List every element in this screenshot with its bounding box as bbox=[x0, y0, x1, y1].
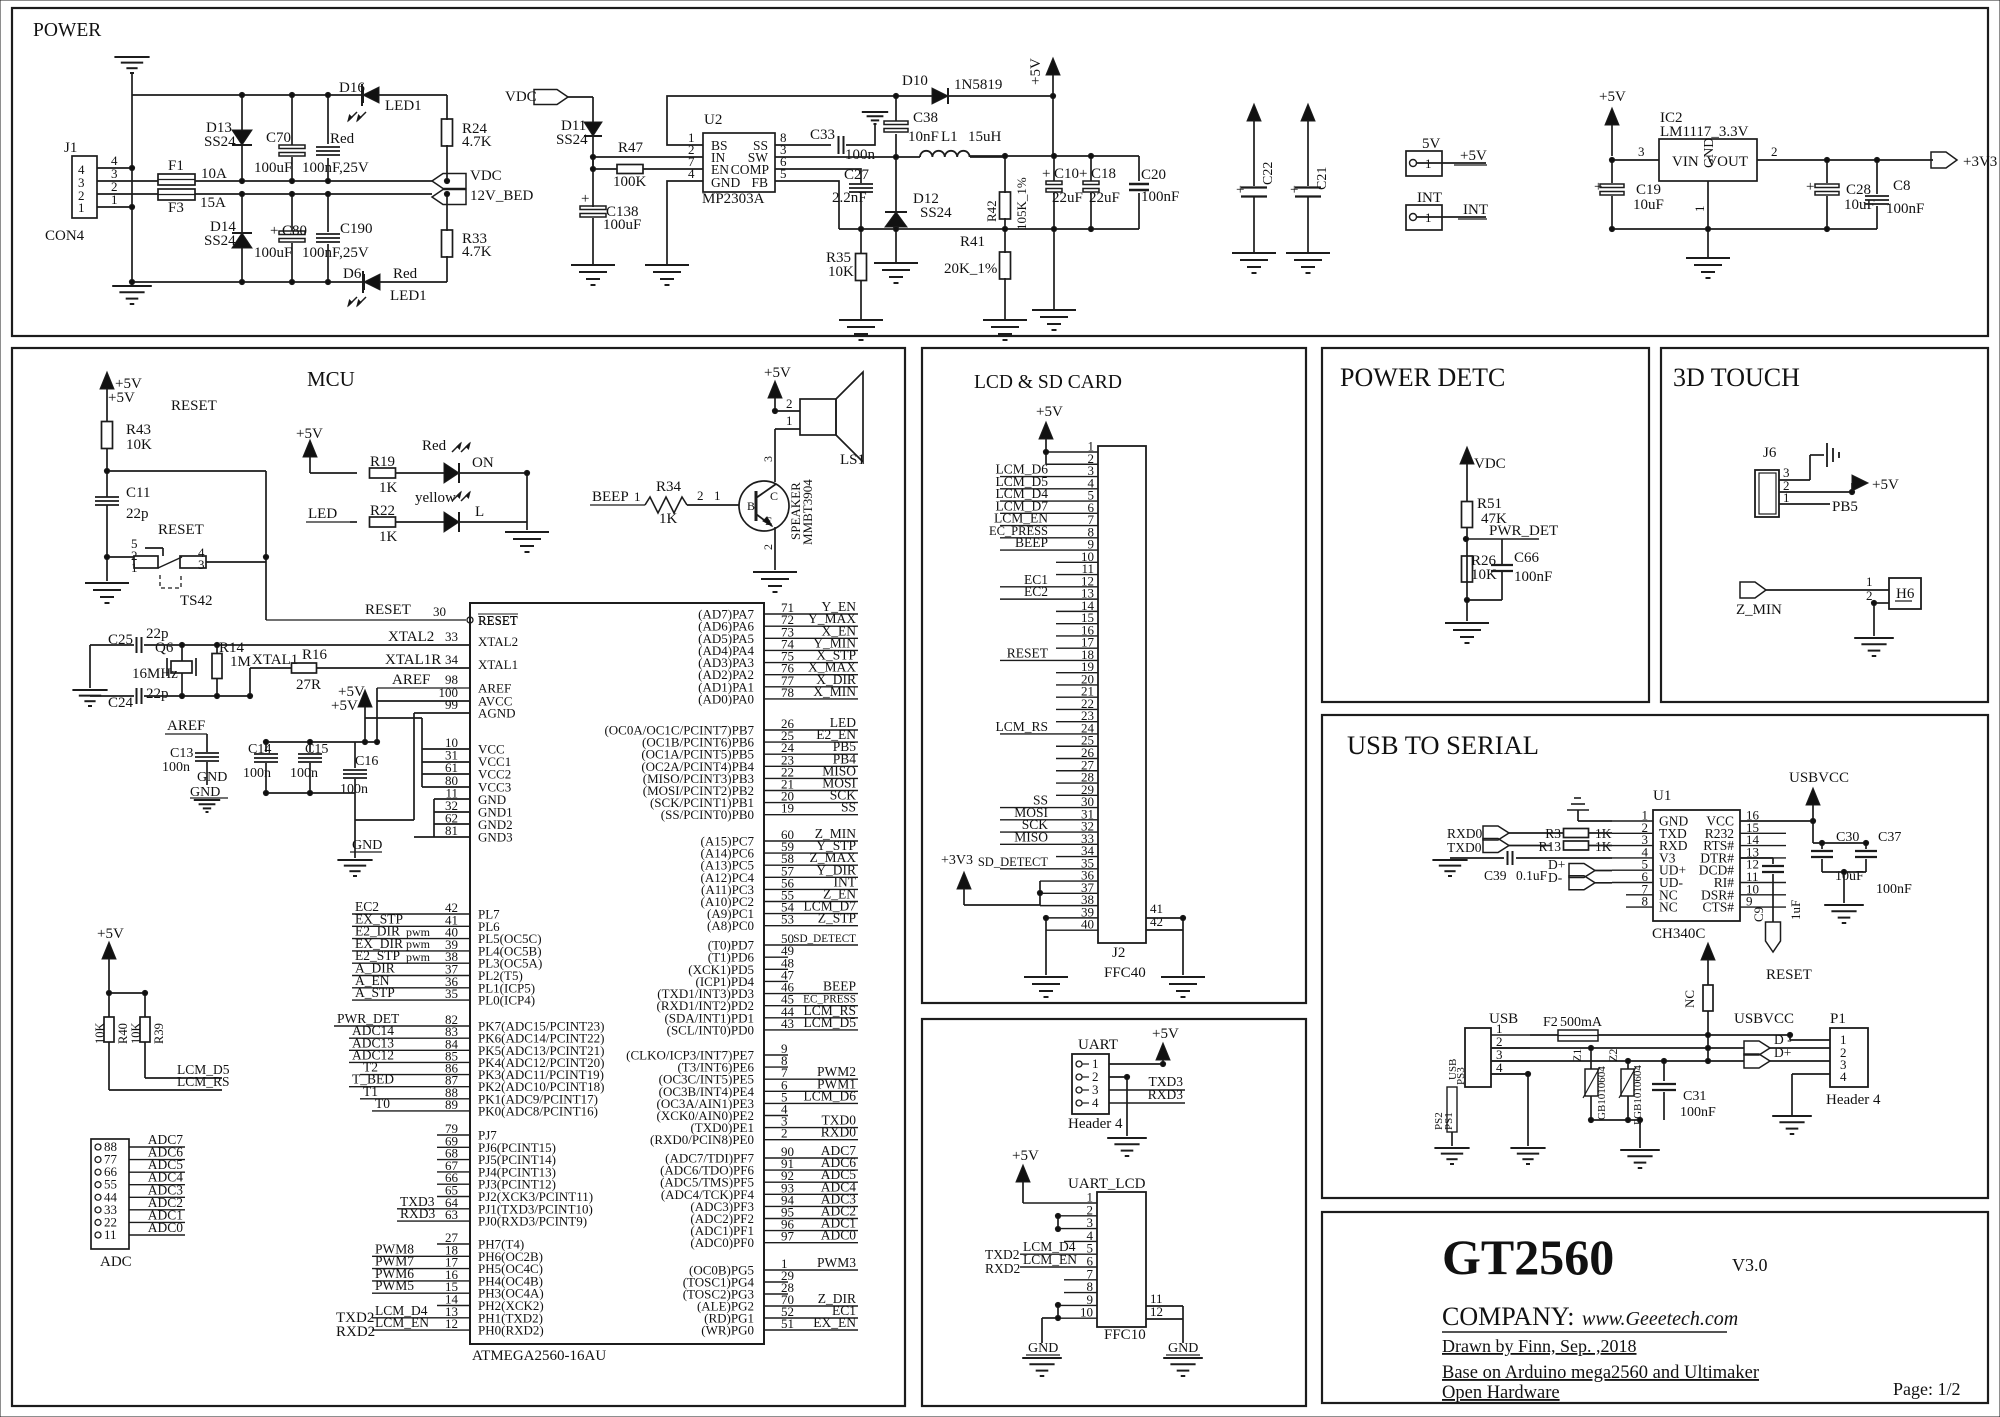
svg-text:100n: 100n bbox=[290, 766, 318, 781]
svg-text:NC: NC bbox=[1659, 900, 1678, 915]
svg-text:C66: C66 bbox=[1514, 550, 1540, 566]
svg-text:500mA: 500mA bbox=[1560, 1015, 1603, 1030]
svg-text:2: 2 bbox=[781, 1126, 788, 1141]
svg-text:MISO: MISO bbox=[1014, 829, 1048, 844]
svg-text:V3.0: V3.0 bbox=[1732, 1255, 1768, 1275]
svg-text:1: 1 bbox=[1866, 574, 1873, 589]
svg-text:COMPANY:: COMPANY: bbox=[1442, 1302, 1574, 1331]
svg-text:+: + bbox=[1806, 179, 1814, 195]
svg-text:E: E bbox=[765, 514, 772, 528]
svg-text:Red: Red bbox=[330, 131, 355, 147]
svg-text:PWM5: PWM5 bbox=[375, 1278, 414, 1293]
svg-text:L: L bbox=[475, 504, 484, 520]
svg-text:RESET: RESET bbox=[1766, 967, 1812, 983]
svg-text:C13: C13 bbox=[170, 746, 193, 761]
svg-text:UART: UART bbox=[1078, 1037, 1118, 1053]
svg-text:D6: D6 bbox=[343, 266, 362, 282]
svg-text:81: 81 bbox=[445, 823, 458, 838]
svg-text:PWR_DET: PWR_DET bbox=[1489, 523, 1558, 539]
svg-text:10K: 10K bbox=[126, 437, 152, 453]
svg-text:15A: 15A bbox=[200, 195, 226, 211]
svg-text:97: 97 bbox=[781, 1229, 795, 1244]
svg-text:INT: INT bbox=[1417, 190, 1442, 206]
svg-text:PL0(ICP4): PL0(ICP4) bbox=[478, 993, 535, 1008]
svg-text:X_MIN: X_MIN bbox=[813, 684, 856, 699]
svg-text:GND: GND bbox=[197, 770, 227, 785]
svg-text:3: 3 bbox=[1638, 144, 1645, 159]
svg-text:10: 10 bbox=[1080, 1305, 1093, 1320]
svg-text:USB: USB bbox=[1489, 1011, 1518, 1027]
svg-text:GT2560: GT2560 bbox=[1442, 1229, 1614, 1285]
svg-text:Z_MIN: Z_MIN bbox=[1736, 602, 1782, 618]
svg-text:LCM_RS: LCM_RS bbox=[177, 1074, 230, 1089]
svg-text:J2: J2 bbox=[1112, 945, 1125, 961]
svg-text:pwm: pwm bbox=[406, 937, 431, 951]
svg-text:RESET: RESET bbox=[365, 602, 411, 618]
svg-text:INT: INT bbox=[1463, 202, 1488, 218]
svg-text:+3V3: +3V3 bbox=[941, 853, 973, 868]
svg-text:+5V: +5V bbox=[108, 390, 135, 406]
svg-text:VOUT: VOUT bbox=[1706, 154, 1748, 170]
svg-text:3D TOUCH: 3D TOUCH bbox=[1673, 363, 1800, 392]
svg-text:SS24: SS24 bbox=[204, 134, 236, 150]
svg-text:100nF,25V: 100nF,25V bbox=[302, 245, 369, 261]
svg-text:J6: J6 bbox=[1763, 445, 1777, 461]
svg-text:SS24: SS24 bbox=[204, 233, 236, 249]
svg-text:R51: R51 bbox=[1477, 496, 1502, 512]
svg-text:RXD3: RXD3 bbox=[400, 1206, 436, 1221]
svg-text:78: 78 bbox=[781, 685, 794, 700]
svg-text:R42: R42 bbox=[984, 200, 999, 222]
svg-text:1K: 1K bbox=[659, 511, 678, 527]
svg-text:F3: F3 bbox=[168, 200, 184, 216]
svg-text:(SCL/INT0)PD0: (SCL/INT0)PD0 bbox=[667, 1022, 754, 1037]
svg-text:SD_DETECT: SD_DETECT bbox=[793, 933, 856, 945]
svg-text:Red: Red bbox=[393, 266, 418, 282]
svg-text:R47: R47 bbox=[618, 140, 644, 156]
svg-text:+5V: +5V bbox=[764, 365, 791, 381]
svg-text:30: 30 bbox=[433, 604, 446, 619]
svg-text:RXD2: RXD2 bbox=[336, 1324, 375, 1340]
svg-text:51: 51 bbox=[781, 1316, 794, 1331]
svg-text:+5V: +5V bbox=[1599, 89, 1626, 105]
svg-text:22p: 22p bbox=[126, 506, 149, 522]
svg-text:53: 53 bbox=[781, 912, 794, 927]
svg-text:MMBT3904: MMBT3904 bbox=[800, 479, 815, 545]
svg-text:Q6: Q6 bbox=[155, 640, 174, 656]
svg-text:FFC10: FFC10 bbox=[1104, 1327, 1146, 1343]
svg-text:+5V: +5V bbox=[331, 698, 358, 714]
svg-text:C30: C30 bbox=[1836, 830, 1859, 845]
svg-text:R43: R43 bbox=[126, 422, 151, 438]
svg-text:2: 2 bbox=[697, 488, 704, 503]
svg-text:LCM_EN: LCM_EN bbox=[375, 1315, 429, 1330]
svg-text:Open Hardware: Open Hardware bbox=[1442, 1383, 1560, 1403]
svg-text:GB1010604: GB1010604 bbox=[1596, 1066, 1608, 1120]
svg-text:1M: 1M bbox=[230, 654, 251, 670]
svg-text:C22: C22 bbox=[1261, 162, 1276, 185]
svg-text:4.7K: 4.7K bbox=[462, 134, 492, 150]
svg-text:10K: 10K bbox=[129, 1022, 143, 1044]
svg-text:R19: R19 bbox=[370, 454, 395, 470]
svg-text:10K: 10K bbox=[828, 264, 854, 280]
svg-text:CON4: CON4 bbox=[45, 228, 85, 244]
svg-text:GND: GND bbox=[352, 838, 382, 853]
svg-text:LED: LED bbox=[308, 506, 337, 522]
svg-text:UART_LCD: UART_LCD bbox=[1068, 1176, 1146, 1192]
svg-text:LED1: LED1 bbox=[390, 288, 427, 304]
svg-text:J1: J1 bbox=[64, 140, 77, 156]
svg-text:5V: 5V bbox=[1422, 136, 1441, 152]
svg-text:(A8)PC0: (A8)PC0 bbox=[707, 918, 754, 933]
svg-text:FB: FB bbox=[751, 175, 768, 190]
svg-text:TS42: TS42 bbox=[180, 593, 213, 609]
svg-text:100n: 100n bbox=[845, 147, 876, 163]
svg-text:XTAL2: XTAL2 bbox=[478, 634, 518, 649]
svg-text:Z2: Z2 bbox=[1606, 1049, 1620, 1062]
svg-text:10K: 10K bbox=[1471, 567, 1497, 583]
svg-text:1: 1 bbox=[78, 200, 85, 215]
svg-text:12V_BED: 12V_BED bbox=[470, 188, 534, 204]
svg-text:C18: C18 bbox=[1091, 166, 1116, 182]
svg-text:MCU: MCU bbox=[307, 367, 355, 391]
svg-text:RESET: RESET bbox=[171, 398, 217, 414]
svg-text:C10: C10 bbox=[1054, 166, 1079, 182]
svg-text:100uF: 100uF bbox=[603, 217, 641, 233]
svg-text:2: 2 bbox=[1866, 588, 1873, 603]
svg-text:U2: U2 bbox=[704, 112, 722, 128]
svg-text:Red: Red bbox=[422, 438, 447, 454]
svg-text:+: + bbox=[581, 191, 589, 207]
svg-text:10uF: 10uF bbox=[1633, 197, 1664, 213]
svg-text:F2: F2 bbox=[1543, 1015, 1558, 1030]
svg-text:ADC: ADC bbox=[100, 1254, 132, 1270]
svg-text:8: 8 bbox=[1642, 894, 1649, 909]
svg-text:BEEP: BEEP bbox=[823, 979, 856, 994]
svg-text:L1: L1 bbox=[941, 129, 958, 145]
svg-text:C16: C16 bbox=[355, 754, 378, 769]
svg-text:EC2: EC2 bbox=[1024, 584, 1048, 599]
svg-text:100uF: 100uF bbox=[254, 245, 292, 261]
svg-text:RXD0: RXD0 bbox=[821, 1125, 857, 1140]
svg-text:U1: U1 bbox=[1653, 788, 1671, 804]
svg-text:R40: R40 bbox=[116, 1023, 130, 1044]
svg-text:LM1117_3.3V: LM1117_3.3V bbox=[1660, 124, 1749, 140]
svg-text:R22: R22 bbox=[370, 503, 395, 519]
svg-text:2: 2 bbox=[761, 544, 775, 550]
svg-text:R13: R13 bbox=[1538, 839, 1561, 854]
svg-text:12: 12 bbox=[445, 1316, 458, 1331]
svg-text:Z1: Z1 bbox=[1570, 1049, 1584, 1062]
svg-text:1N5819: 1N5819 bbox=[954, 77, 1002, 93]
svg-text:(AD0)PA0: (AD0)PA0 bbox=[698, 691, 754, 706]
svg-text:100nF: 100nF bbox=[1141, 189, 1179, 205]
svg-text:LS1: LS1 bbox=[840, 452, 865, 468]
svg-text:+5V: +5V bbox=[1152, 1026, 1179, 1042]
svg-text:4.7K: 4.7K bbox=[462, 244, 492, 260]
svg-text:ON: ON bbox=[472, 455, 494, 471]
svg-text:PH0(RXD2): PH0(RXD2) bbox=[478, 1323, 544, 1338]
svg-text:100n: 100n bbox=[340, 782, 368, 797]
svg-text:pwm: pwm bbox=[406, 950, 431, 964]
svg-text:NC: NC bbox=[1682, 990, 1697, 1008]
svg-text:B: B bbox=[747, 499, 755, 513]
svg-text:4: 4 bbox=[1496, 1060, 1503, 1075]
svg-text:AGND: AGND bbox=[478, 706, 516, 721]
svg-text:1uF: 1uF bbox=[1788, 900, 1803, 920]
svg-text:C8: C8 bbox=[1893, 178, 1911, 194]
svg-text:R34: R34 bbox=[656, 479, 682, 495]
svg-text:34: 34 bbox=[445, 652, 459, 667]
svg-text:C37: C37 bbox=[1878, 830, 1901, 845]
svg-text:FFC40: FFC40 bbox=[1104, 965, 1146, 981]
svg-text:SS24: SS24 bbox=[556, 132, 588, 148]
svg-text:Drawn by Finn, Sep. ,2018: Drawn by Finn, Sep. ,2018 bbox=[1442, 1336, 1637, 1356]
svg-text:Base on Arduino mega2560 and U: Base on Arduino mega2560 and Ultimaker bbox=[1442, 1363, 1759, 1383]
svg-text:BEEP: BEEP bbox=[1015, 535, 1048, 550]
svg-text:USBVCC: USBVCC bbox=[1734, 1011, 1794, 1027]
svg-text:43: 43 bbox=[781, 1016, 794, 1031]
svg-text:LCM_D5: LCM_D5 bbox=[803, 1015, 856, 1030]
svg-text:22p: 22p bbox=[146, 686, 169, 702]
svg-text:4: 4 bbox=[1840, 1069, 1847, 1084]
svg-text:SD_DETECT: SD_DETECT bbox=[978, 855, 1049, 869]
svg-text:R16: R16 bbox=[302, 647, 328, 663]
svg-text:XTAL1: XTAL1 bbox=[478, 657, 518, 672]
svg-text:105K_1%: 105K_1% bbox=[1014, 177, 1029, 230]
svg-text:Page: 1/2: Page: 1/2 bbox=[1893, 1379, 1961, 1399]
svg-text:89: 89 bbox=[445, 1097, 458, 1112]
svg-text:+5V: +5V bbox=[1460, 148, 1487, 164]
svg-text:C38: C38 bbox=[913, 110, 938, 126]
svg-text:99: 99 bbox=[445, 697, 458, 712]
svg-text:Z_STP: Z_STP bbox=[818, 911, 856, 926]
svg-text:100nF: 100nF bbox=[1514, 569, 1552, 585]
svg-text:15uH: 15uH bbox=[968, 129, 1002, 145]
svg-text:RESET: RESET bbox=[478, 613, 518, 628]
svg-text:D10: D10 bbox=[902, 73, 928, 89]
svg-text:PJ0(RXD3/PCINT9): PJ0(RXD3/PCINT9) bbox=[478, 1214, 587, 1229]
svg-text:EX_EN: EX_EN bbox=[813, 1315, 856, 1330]
svg-text:ADC0: ADC0 bbox=[821, 1228, 857, 1243]
svg-text:C33: C33 bbox=[810, 127, 835, 143]
svg-text:C190: C190 bbox=[340, 221, 373, 237]
svg-text:LED1: LED1 bbox=[385, 98, 422, 114]
svg-text:MP2303A: MP2303A bbox=[702, 191, 765, 207]
svg-text:A_STP: A_STP bbox=[355, 985, 395, 1000]
svg-text:2: 2 bbox=[1771, 144, 1778, 159]
svg-text:AREF: AREF bbox=[167, 718, 205, 734]
svg-text:+5V: +5V bbox=[1028, 58, 1044, 85]
svg-text:0.1uF: 0.1uF bbox=[1516, 868, 1548, 883]
svg-text:CTS#: CTS# bbox=[1702, 900, 1734, 915]
svg-text:100nF: 100nF bbox=[1876, 882, 1912, 897]
svg-text:LCM_RS: LCM_RS bbox=[995, 719, 1048, 734]
svg-text:Header 4: Header 4 bbox=[1826, 1092, 1881, 1108]
svg-text:100K: 100K bbox=[613, 174, 647, 190]
svg-text:VDC: VDC bbox=[470, 168, 502, 184]
svg-text:LCD & SD CARD: LCD & SD CARD bbox=[974, 372, 1122, 393]
svg-text:11: 11 bbox=[104, 1227, 117, 1242]
svg-text:www.Geeetech.com: www.Geeetech.com bbox=[1582, 1308, 1738, 1330]
svg-text:10A: 10A bbox=[201, 166, 227, 182]
svg-text:C27: C27 bbox=[844, 167, 870, 183]
svg-text:+: + bbox=[1042, 166, 1050, 182]
svg-text:LCM_EN: LCM_EN bbox=[1023, 1252, 1077, 1267]
svg-text:1: 1 bbox=[111, 192, 118, 207]
svg-text:PGB1010604: PGB1010604 bbox=[1632, 1065, 1644, 1125]
svg-text:63: 63 bbox=[445, 1207, 458, 1222]
svg-text:1K: 1K bbox=[379, 529, 398, 545]
svg-text:yellow: yellow bbox=[415, 490, 456, 506]
svg-text:CH340C: CH340C bbox=[1652, 926, 1705, 942]
svg-text:ATMEGA2560-16AU: ATMEGA2560-16AU bbox=[472, 1348, 606, 1364]
svg-text:POWER: POWER bbox=[33, 20, 101, 41]
svg-text:D16: D16 bbox=[339, 80, 365, 96]
svg-text:GND: GND bbox=[1028, 1341, 1058, 1356]
svg-text:2: 2 bbox=[786, 396, 793, 411]
svg-text:(SS/PCINT0)PB0: (SS/PCINT0)PB0 bbox=[661, 807, 754, 822]
svg-text:POWER DETC: POWER DETC bbox=[1340, 363, 1505, 392]
svg-text:1: 1 bbox=[714, 488, 721, 503]
svg-text:+5V: +5V bbox=[1036, 404, 1063, 420]
svg-text:42: 42 bbox=[1150, 914, 1163, 929]
svg-text:19: 19 bbox=[781, 801, 794, 816]
svg-text:35: 35 bbox=[445, 986, 458, 1001]
svg-text:(RXD0/PCIN8)PE0: (RXD0/PCIN8)PE0 bbox=[650, 1132, 754, 1147]
svg-text:1: 1 bbox=[634, 489, 641, 504]
svg-text:VDC: VDC bbox=[505, 89, 537, 105]
svg-text:ADC0: ADC0 bbox=[148, 1220, 184, 1235]
svg-text:+5V: +5V bbox=[296, 426, 323, 442]
svg-text:10K: 10K bbox=[93, 1022, 107, 1044]
svg-text:TXD0: TXD0 bbox=[1447, 840, 1482, 855]
svg-text:GND3: GND3 bbox=[478, 830, 513, 845]
svg-text:+: + bbox=[1079, 166, 1087, 182]
svg-text:100nF: 100nF bbox=[1886, 201, 1924, 217]
svg-text:BEEP: BEEP bbox=[592, 489, 629, 505]
svg-text:C39: C39 bbox=[1484, 868, 1507, 883]
svg-text:Header 4: Header 4 bbox=[1068, 1116, 1123, 1132]
svg-text:(ADC0)PF0: (ADC0)PF0 bbox=[690, 1235, 754, 1250]
svg-text:RXD2: RXD2 bbox=[985, 1261, 1020, 1276]
svg-text:RXD3: RXD3 bbox=[1148, 1087, 1184, 1102]
svg-text:33: 33 bbox=[445, 629, 458, 644]
svg-text:AREF: AREF bbox=[392, 672, 430, 688]
svg-text:22uF: 22uF bbox=[1089, 190, 1120, 206]
svg-text:PS3: PS3 bbox=[1455, 1067, 1467, 1085]
svg-text:27R: 27R bbox=[296, 677, 321, 693]
svg-text:C24: C24 bbox=[108, 695, 134, 711]
svg-text:C11: C11 bbox=[126, 485, 150, 501]
svg-text:40: 40 bbox=[1081, 917, 1094, 932]
svg-text:C20: C20 bbox=[1141, 167, 1166, 183]
svg-text:1K: 1K bbox=[379, 480, 398, 496]
svg-text:+5V: +5V bbox=[1012, 1148, 1039, 1164]
svg-text:T0: T0 bbox=[375, 1096, 390, 1111]
svg-text:XTAL2: XTAL2 bbox=[388, 629, 434, 645]
svg-text:XTAL1R: XTAL1R bbox=[385, 652, 441, 668]
svg-text:C70: C70 bbox=[266, 130, 291, 146]
svg-text:100n: 100n bbox=[162, 760, 190, 775]
svg-text:+: + bbox=[270, 223, 278, 239]
svg-text:C31: C31 bbox=[1683, 1089, 1706, 1104]
svg-text:C: C bbox=[770, 489, 778, 503]
svg-text:RESET: RESET bbox=[158, 522, 204, 538]
svg-text:F1: F1 bbox=[168, 158, 184, 174]
svg-text:GND: GND bbox=[711, 175, 740, 190]
svg-text:1K: 1K bbox=[1595, 839, 1612, 854]
svg-text:PS1: PS1 bbox=[1443, 1112, 1455, 1130]
svg-text:(WR)PG0: (WR)PG0 bbox=[701, 1323, 754, 1338]
svg-text:D-: D- bbox=[1548, 870, 1563, 885]
svg-text:R41: R41 bbox=[960, 234, 985, 250]
svg-text:+5V: +5V bbox=[1872, 477, 1899, 493]
svg-text:+5V: +5V bbox=[97, 926, 124, 942]
svg-text:SS24: SS24 bbox=[920, 205, 952, 221]
svg-text:4: 4 bbox=[1092, 1095, 1099, 1110]
svg-text:100nF: 100nF bbox=[1680, 1105, 1716, 1120]
svg-text:16MHz: 16MHz bbox=[132, 666, 178, 682]
svg-text:20K_1%: 20K_1% bbox=[944, 261, 997, 277]
svg-text:P1: P1 bbox=[1830, 1011, 1846, 1027]
svg-text:SS: SS bbox=[841, 800, 856, 815]
svg-text:C19: C19 bbox=[1636, 182, 1661, 198]
svg-text:PB5: PB5 bbox=[1832, 499, 1858, 515]
svg-text:C80: C80 bbox=[282, 223, 307, 239]
svg-text:1: 1 bbox=[786, 413, 793, 428]
svg-text:VIN: VIN bbox=[1672, 154, 1699, 170]
svg-text:3: 3 bbox=[761, 456, 775, 462]
svg-text:+3V3: +3V3 bbox=[1963, 154, 1997, 170]
svg-text:100nF,25V: 100nF,25V bbox=[302, 160, 369, 176]
svg-text:PWM3: PWM3 bbox=[817, 1255, 856, 1270]
svg-text:3: 3 bbox=[198, 557, 205, 572]
svg-text:USB TO SERIAL: USB TO SERIAL bbox=[1347, 730, 1539, 760]
svg-text:1: 1 bbox=[1692, 206, 1707, 213]
svg-text:RXD0: RXD0 bbox=[1447, 826, 1483, 841]
svg-text:R39: R39 bbox=[152, 1023, 166, 1044]
svg-text:USBVCC: USBVCC bbox=[1789, 770, 1849, 786]
svg-text:9: 9 bbox=[1746, 894, 1753, 909]
svg-text:RESET: RESET bbox=[1007, 645, 1049, 660]
svg-text:22uF: 22uF bbox=[1052, 190, 1083, 206]
svg-text:TXD2: TXD2 bbox=[985, 1247, 1020, 1262]
svg-text:100uF: 100uF bbox=[254, 160, 292, 176]
svg-text:VDC: VDC bbox=[1474, 456, 1506, 472]
svg-text:LCM_D6: LCM_D6 bbox=[803, 1088, 856, 1103]
svg-text:PK0(ADC8/PCINT16): PK0(ADC8/PCINT16) bbox=[478, 1103, 598, 1118]
svg-text:10nF: 10nF bbox=[908, 129, 939, 145]
svg-text:C9: C9 bbox=[1751, 907, 1766, 922]
svg-text:GND: GND bbox=[1168, 1341, 1198, 1356]
svg-text:H6: H6 bbox=[1896, 586, 1915, 602]
